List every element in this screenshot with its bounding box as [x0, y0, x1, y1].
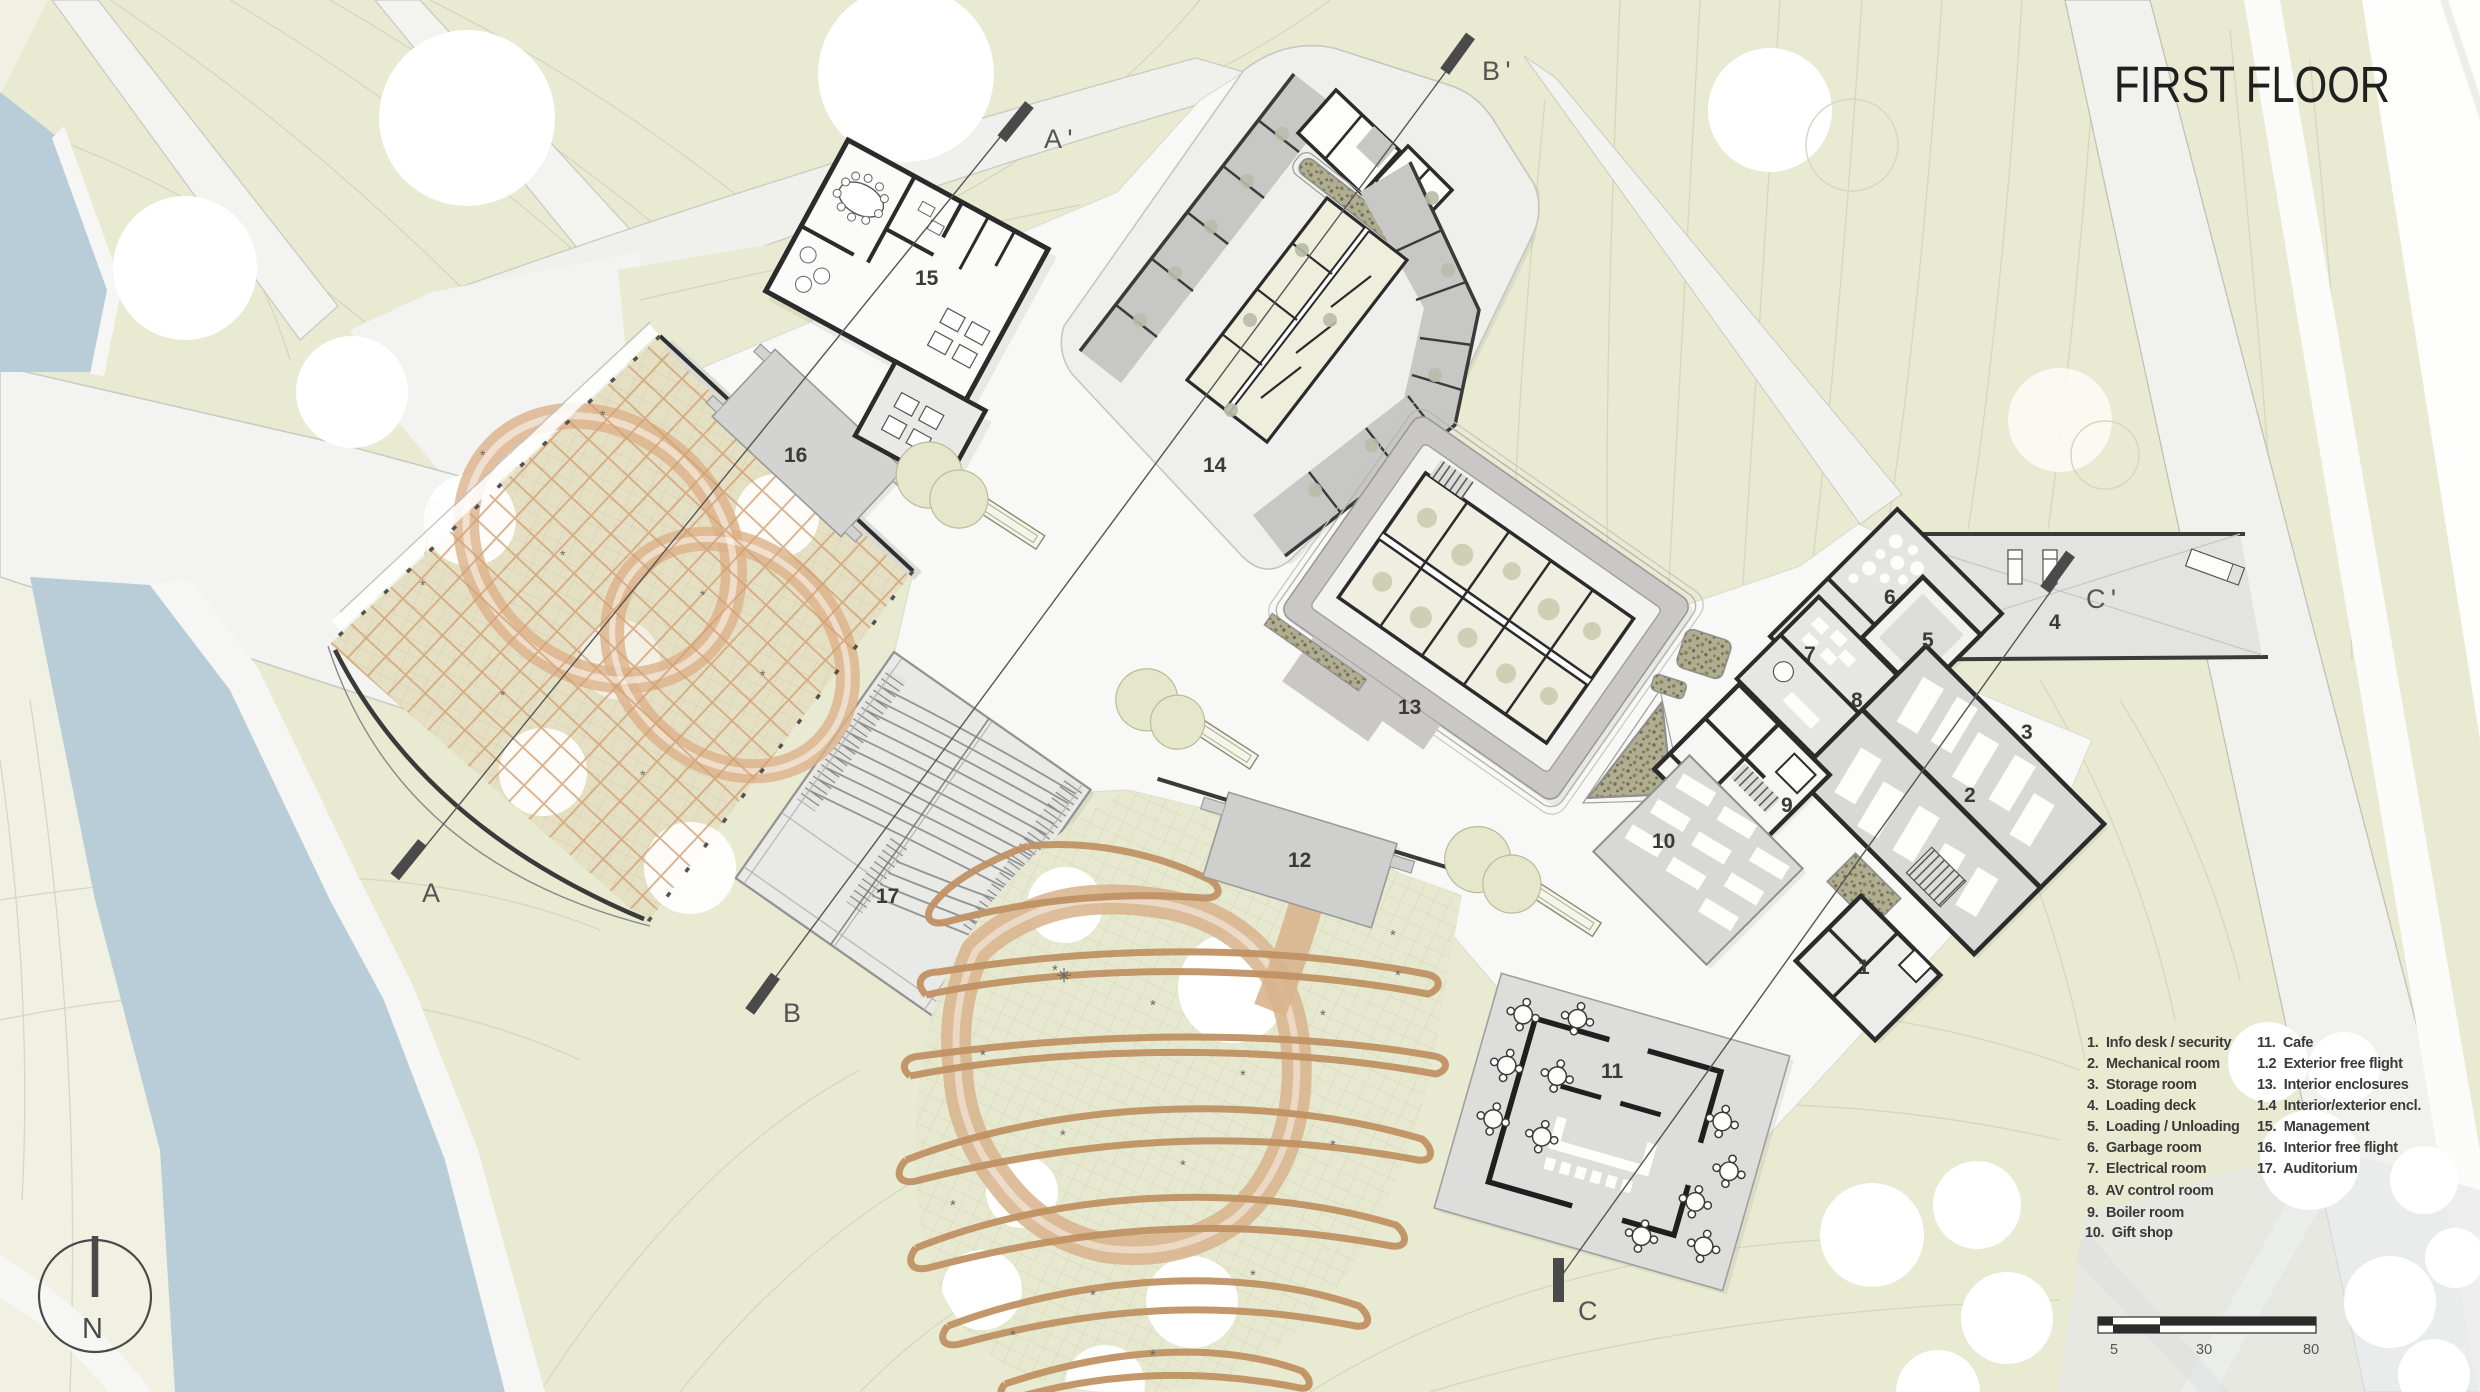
svg-text:*: * [1010, 1327, 1016, 1344]
svg-text:4. Loading deck: 4. Loading deck [2087, 1098, 2197, 1114]
svg-text:1. Info desk / security: 1. Info desk / security [2087, 1035, 2232, 1051]
svg-text:*: * [1330, 1137, 1336, 1154]
svg-text:6. Garbage room: 6. Garbage room [2087, 1140, 2201, 1156]
svg-text:7. Electrical room: 7. Electrical room [2087, 1161, 2206, 1177]
svg-text:C: C [1578, 1296, 1598, 1326]
svg-text:*: * [480, 447, 486, 463]
svg-text:*: * [1150, 1347, 1156, 1364]
svg-text:*: * [420, 577, 426, 593]
svg-text:30: 30 [2196, 1342, 2212, 1358]
svg-text:A: A [422, 878, 440, 908]
svg-text:FIRST FLOOR: FIRST FLOOR [2114, 56, 2390, 113]
svg-text:12: 12 [1288, 849, 1311, 872]
svg-text:6: 6 [1884, 586, 1896, 609]
svg-text:10. Gift shop: 10. Gift shop [2085, 1225, 2173, 1241]
svg-text:*: * [560, 547, 566, 563]
svg-text:*: * [1320, 1007, 1326, 1024]
svg-text:15. Management: 15. Management [2257, 1119, 2370, 1135]
svg-text:1: 1 [1858, 956, 1870, 979]
svg-text:*: * [1390, 927, 1396, 944]
svg-text:13: 13 [1398, 696, 1421, 719]
svg-text:11. Cafe: 11. Cafe [2257, 1035, 2313, 1051]
svg-text:3. Storage room: 3. Storage room [2087, 1077, 2197, 1093]
svg-text:*: * [1060, 1127, 1066, 1144]
svg-text:9: 9 [1781, 794, 1793, 817]
svg-text:16: 16 [784, 444, 807, 467]
svg-text:*: * [1395, 967, 1401, 984]
svg-text:17: 17 [876, 885, 899, 908]
svg-text:N: N [82, 1313, 103, 1345]
svg-text:2. Mechanical room: 2. Mechanical room [2087, 1056, 2220, 1072]
svg-text:11: 11 [1601, 1060, 1624, 1083]
svg-text:*: * [950, 1197, 956, 1214]
svg-text:15: 15 [915, 267, 939, 290]
svg-text:10: 10 [1652, 830, 1675, 853]
svg-text:14: 14 [1203, 454, 1227, 477]
svg-text:13. Interior enclosures: 13. Interior enclosures [2257, 1077, 2409, 1093]
svg-text:9. Boiler room: 9. Boiler room [2087, 1205, 2184, 1221]
svg-text:C ': C ' [2086, 584, 2116, 614]
svg-text:*: * [1052, 962, 1058, 979]
svg-text:1.2 Exterior free flight: 1.2 Exterior free flight [2257, 1056, 2403, 1072]
svg-text:*: * [1090, 1287, 1096, 1304]
svg-text:*: * [640, 767, 646, 783]
svg-text:17. Auditorium: 17. Auditorium [2257, 1161, 2358, 1177]
svg-text:16. Interior free flight: 16. Interior free flight [2257, 1140, 2398, 1156]
svg-text:8. AV control room: 8. AV control room [2087, 1183, 2213, 1199]
svg-text:7: 7 [1804, 643, 1816, 666]
svg-text:*: * [760, 667, 766, 683]
svg-text:*: * [1240, 1067, 1246, 1084]
svg-text:*: * [500, 687, 506, 703]
svg-text:4: 4 [2049, 611, 2061, 634]
svg-text:5: 5 [2110, 1342, 2118, 1358]
svg-text:B: B [783, 998, 801, 1028]
svg-text:B ': B ' [1482, 56, 1511, 86]
svg-text:*: * [980, 1047, 986, 1064]
svg-text:5: 5 [1922, 629, 1934, 652]
svg-text:5. Loading / Unloading: 5. Loading / Unloading [2087, 1119, 2240, 1135]
svg-text:*: * [700, 587, 706, 603]
svg-text:A ': A ' [1044, 124, 1073, 154]
svg-text:2: 2 [1964, 784, 1976, 807]
svg-text:*: * [1250, 1267, 1256, 1284]
svg-text:80: 80 [2303, 1342, 2319, 1358]
svg-text:*: * [1150, 997, 1156, 1014]
svg-text:*: * [1180, 1157, 1186, 1174]
svg-text:8: 8 [1851, 689, 1863, 712]
svg-text:3: 3 [2021, 721, 2033, 744]
svg-text:*: * [600, 407, 606, 423]
svg-text:1.4 Interior/exterior encl.: 1.4 Interior/exterior encl. [2257, 1098, 2421, 1114]
